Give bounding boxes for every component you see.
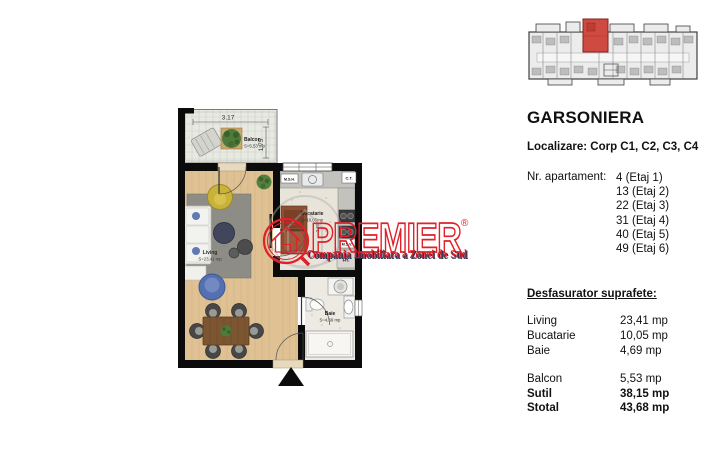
area-label: Bucatarie: [527, 330, 576, 342]
sink-icon: [302, 173, 323, 186]
areas-heading: Desfasurator suprafete:: [527, 288, 657, 300]
total-row: Balcon 5,53 mp: [527, 373, 702, 388]
area-label: Baie: [527, 345, 550, 357]
totals-table: Balcon 5,53 mp Sutil 38,15 mp Stotal 43,…: [527, 373, 702, 417]
toilet-icon: [306, 298, 324, 311]
shower-icon: [306, 331, 353, 357]
total-value: 43,68 mp: [620, 402, 669, 414]
bath-sink-icon: [344, 296, 355, 318]
entrance-arrow-icon: [278, 367, 304, 386]
bath-window: [355, 300, 362, 316]
apartment-entry: 4 (Etaj 1): [616, 171, 669, 185]
balcony-plant-icon: [221, 128, 242, 149]
apartment-entry: 40 (Etaj 5): [616, 228, 669, 242]
living-area: S=23,41 mp: [198, 257, 222, 262]
area-value: 10,05 mp: [620, 330, 668, 342]
highlighted-unit: [583, 19, 608, 52]
total-label: Stotal: [527, 402, 559, 414]
pouf: [214, 223, 235, 244]
registered-mark: ®: [461, 218, 469, 229]
area-value: 4,69 mp: [620, 345, 662, 357]
balcony-area: S=5,53 mp: [244, 144, 266, 149]
total-value: 38,15 mp: [620, 388, 669, 400]
balcony-threshold: [218, 163, 246, 171]
side-table-small: [229, 248, 239, 258]
building-locator-plan: [529, 19, 697, 85]
area-row: Baie 4,69 mp: [527, 345, 702, 360]
blue-armchair: [199, 274, 225, 300]
yellow-armchair: [208, 185, 233, 210]
areas-table: Living 23,41 mp Bucatarie 10,05 mp Baie …: [527, 315, 702, 360]
plant-icon: [257, 175, 272, 190]
total-row: Sutil 38,15 mp: [527, 388, 702, 403]
apartment-entry: 22 (Etaj 3): [616, 199, 669, 213]
apartment-entry: 13 (Etaj 2): [616, 185, 669, 199]
area-label: Living: [527, 315, 557, 327]
washing-machine-icon: [328, 278, 353, 295]
area-value: 23,41 mp: [620, 315, 668, 327]
total-row: Stotal 43,68 mp: [527, 402, 702, 417]
apartment-entry: 31 (Etaj 4): [616, 214, 669, 228]
apartment-number-list: 4 (Etaj 1) 13 (Etaj 2) 22 (Etaj 3) 31 (E…: [616, 171, 669, 256]
watermark-tagline: Compania Imobiliara a Zonei de Sud: [307, 247, 467, 261]
balcony-label: Balcon: [244, 137, 261, 143]
page-title: GARSONIERA: [527, 108, 644, 128]
apartment-number-label: Nr. apartament:: [527, 171, 606, 183]
localizare-line: Localizare: Corp C1, C2, C3, C4: [527, 141, 698, 153]
total-label: Sutil: [527, 388, 552, 400]
tag-ct: C.T.: [345, 176, 352, 181]
total-value: 5,53 mp: [620, 373, 662, 385]
bath-label: Baie: [325, 311, 336, 317]
apartment-entry: 49 (Etaj 6): [616, 242, 669, 256]
tag-msh: M.S.H.: [284, 178, 295, 182]
kitchen-window: [283, 163, 332, 171]
dim-width: 3.17: [222, 115, 235, 122]
area-row: Living 23,41 mp: [527, 315, 702, 330]
listing-sheet: 3.17 1.75 2.85 Balcon S=5,53 mp Living S…: [0, 0, 720, 475]
side-table: [238, 240, 253, 255]
bath-area: S=4,69 mp: [320, 318, 342, 323]
total-label: Balcon: [527, 373, 562, 385]
living-label: Living: [203, 250, 218, 256]
area-row: Bucatarie 10,05 mp: [527, 330, 702, 345]
entrance-threshold: [273, 360, 303, 368]
